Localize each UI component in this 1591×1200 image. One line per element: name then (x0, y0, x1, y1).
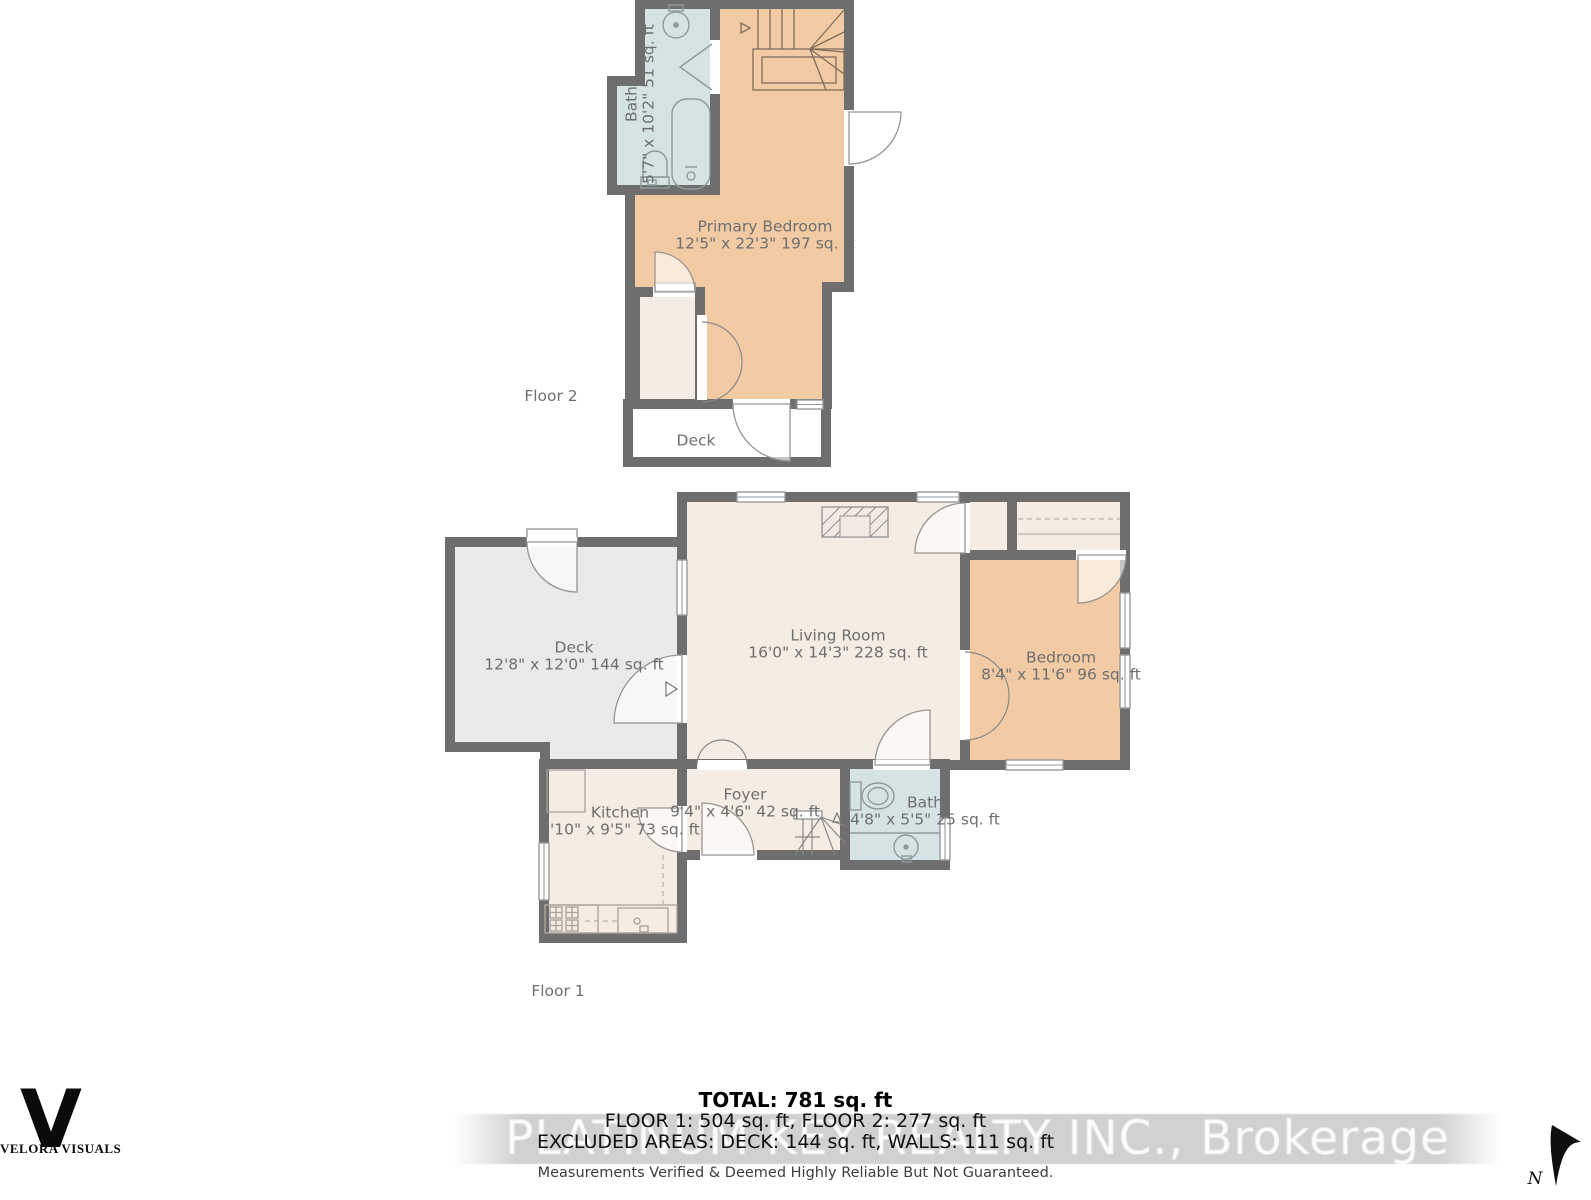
floor1-plan (450, 492, 1130, 938)
floor2-deck-label: Deck (677, 432, 716, 449)
floor2-closet-room (635, 292, 700, 404)
north-label: N (1528, 1169, 1543, 1189)
room-name: Foyer (670, 787, 820, 804)
living-room-label: Living Room 16'0" x 14'3" 228 sq. ft (748, 628, 927, 663)
floor2-bath-door-gap (710, 40, 720, 94)
room-dims: 12'8" x 12'0" 144 sq. ft (484, 657, 663, 674)
total-area-text: TOTAL: 781 sq. ft (0, 1090, 1591, 1110)
room-dims: 7'10" x 9'5" 73 sq. ft (540, 822, 700, 839)
floor2-right-door-arc (849, 112, 901, 164)
floor2-tag: Floor 2 (524, 387, 577, 405)
room-dims: 9'4" x 4'6" 42 sq. ft (670, 804, 820, 821)
room-dims: 12'5" x 22'3" 197 sq. ft (675, 236, 854, 253)
room-name: Deck (677, 432, 716, 449)
primary-bedroom-label: Primary Bedroom 12'5" x 22'3" 197 sq. ft (675, 219, 854, 254)
room-name: Bath (624, 24, 641, 184)
bedroom-label: Bedroom 8'4" x 11'6" 96 sq. ft (981, 650, 1141, 685)
room-name: Living Room (748, 628, 927, 645)
room-dims: 16'0" x 14'3" 228 sq. ft (748, 645, 927, 662)
velora-logo-text: VELORA VISUALS (0, 1141, 121, 1157)
floor1-tag: Floor 1 (531, 982, 584, 1000)
fireplace-icon (822, 507, 888, 537)
room-dims: 4'8" x 5'5" 25 sq. ft (850, 812, 1000, 829)
room-dims: 8'4" x 11'6" 96 sq. ft (981, 667, 1141, 684)
floor1-deck-label: Deck 12'8" x 12'0" 144 sq. ft (484, 640, 663, 675)
room-name: Bedroom (981, 650, 1141, 667)
bedroom-bifold-gap (960, 650, 970, 740)
floor2-deck-room (628, 404, 826, 462)
room-name: Bath (850, 795, 1000, 812)
disclaimer-text: Measurements Verified & Deemed Highly Re… (0, 1165, 1591, 1181)
floor-areas-text: FLOOR 1: 504 sq. ft, FLOOR 2: 277 sq. ft (0, 1112, 1591, 1131)
french-door-gap (697, 760, 747, 770)
foyer-label: Foyer 9'4" x 4'6" 42 sq. ft (670, 787, 820, 822)
floor2-bath-label: Bath 5'7" x 10'2" 51 sq. ft (624, 24, 659, 184)
floor2-bifold-gap (697, 315, 707, 400)
room-name: Primary Bedroom (675, 219, 854, 236)
floor-plan-svg (0, 0, 1591, 1200)
excluded-areas-text: EXCLUDED AREAS: DECK: 144 sq. ft, WALLS:… (0, 1133, 1591, 1152)
bedroom-closet-room (1012, 497, 1125, 555)
alcove-room (965, 497, 1012, 555)
floorplan-page: Bath 5'7" x 10'2" 51 sq. ft Primary Bedr… (0, 0, 1591, 1200)
area-summary: TOTAL: 781 sq. ft FLOOR 1: 504 sq. ft, F… (0, 1090, 1591, 1181)
floor1-bath-label: Bath 4'8" x 5'5" 25 sq. ft (850, 795, 1000, 830)
kitchen-room (544, 764, 682, 938)
room-dims: 5'7" x 10'2" 51 sq. ft (641, 24, 658, 184)
room-name: Deck (484, 640, 663, 657)
